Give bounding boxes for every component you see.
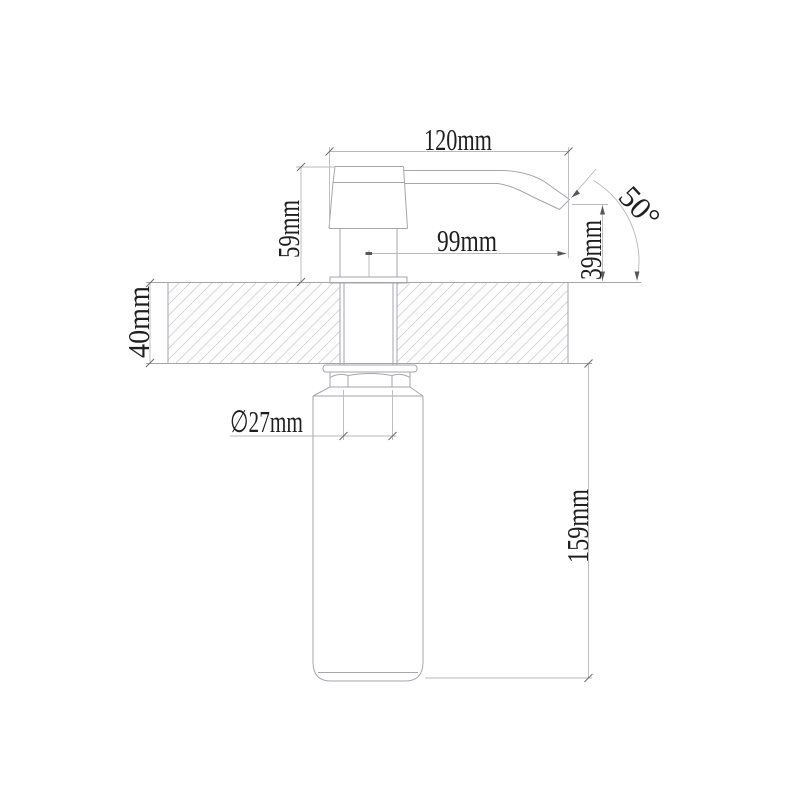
- angle-arrow-bottom: [635, 272, 640, 281]
- label-bottle-length: 159mm: [560, 489, 595, 563]
- label-top-width: 120mm: [424, 122, 492, 157]
- spout: [404, 171, 570, 210]
- label-spout-reach: 99mm: [437, 223, 497, 258]
- reach-origin-mark: [366, 252, 373, 255]
- pump-cone: [329, 183, 408, 229]
- reach-arrowhead: [558, 251, 567, 256]
- label-shank-diameter: ∅27mm: [230, 404, 303, 439]
- bottle-body: [313, 396, 423, 681]
- technical-drawing-page: 120mm 99mm ∅27mm 59mm 40mm 39mm 159mm 50…: [0, 0, 800, 800]
- threaded-shank: [340, 283, 397, 365]
- counter-hatch-right: [398, 283, 569, 363]
- nut-facets: [330, 374, 410, 388]
- oblique-ticks: [146, 148, 593, 683]
- spout-height-arrow-top: [600, 206, 605, 215]
- washer: [323, 365, 417, 372]
- bottle-shoulder: [313, 387, 423, 396]
- pump-cap: [333, 167, 405, 183]
- dimension-lines: [150, 147, 639, 678]
- soap-dispenser-dimension-drawing: 120mm 99mm ∅27mm 59mm 40mm 39mm 159mm 50…: [0, 0, 800, 800]
- label-head-height: 59mm: [271, 200, 306, 258]
- label-deck-thickness: 40mm: [121, 286, 156, 358]
- label-spout-angle: 50°: [612, 179, 668, 235]
- angle-arrow-top: [572, 190, 581, 198]
- counter-hatch-left: [168, 283, 340, 363]
- bottle: [313, 396, 423, 681]
- label-spout-height: 39mm: [573, 220, 608, 280]
